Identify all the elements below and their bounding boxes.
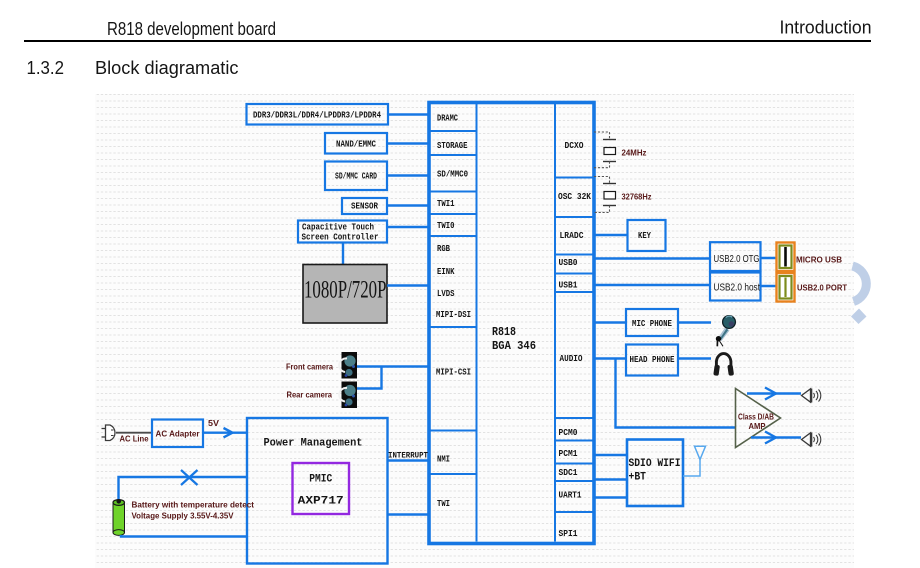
svg-text:24MHz: 24MHz — [622, 148, 647, 158]
svg-text:AMP: AMP — [749, 421, 766, 431]
svg-text:AUDIO: AUDIO — [560, 354, 584, 364]
svg-text:SD/MMC CARD: SD/MMC CARD — [335, 172, 377, 182]
svg-text:SDIO WIFI: SDIO WIFI — [629, 458, 681, 470]
svg-text:HEAD PHONE: HEAD PHONE — [630, 355, 675, 365]
svg-text:TWI: TWI — [437, 499, 450, 509]
svg-text:R818: R818 — [492, 326, 516, 339]
svg-text:KEY: KEY — [638, 231, 651, 241]
svg-text:Front camera: Front camera — [286, 362, 333, 372]
svg-text:DRAMC: DRAMC — [437, 114, 458, 124]
svg-text:SDC1: SDC1 — [559, 468, 579, 478]
svg-text:SENSOR: SENSOR — [351, 202, 378, 212]
svg-text:STORAGE: STORAGE — [437, 141, 468, 151]
svg-text:PCM1: PCM1 — [559, 449, 579, 459]
svg-text:1.3.2: 1.3.2 — [27, 57, 65, 78]
svg-text:USB2.0 PORT: USB2.0 PORT — [797, 283, 848, 293]
svg-text:MICRO USB: MICRO USB — [796, 255, 842, 265]
svg-text:Class D/AB: Class D/AB — [738, 412, 774, 422]
svg-text:PCM0: PCM0 — [559, 428, 578, 438]
svg-text:INTERRUPT: INTERRUPT — [388, 451, 428, 461]
svg-text:AC Adapter: AC Adapter — [156, 429, 201, 439]
svg-text:UART1: UART1 — [559, 491, 583, 501]
svg-text:Power Management: Power Management — [264, 438, 363, 450]
svg-text:RGB: RGB — [437, 244, 450, 254]
svg-text:USB0: USB0 — [559, 258, 578, 268]
svg-text:NMI: NMI — [437, 455, 450, 465]
svg-text:NAND/EMMC: NAND/EMMC — [336, 140, 376, 150]
svg-text:TWI0: TWI0 — [437, 221, 455, 231]
svg-text:TWI1: TWI1 — [437, 199, 455, 209]
svg-text:BGA 346: BGA 346 — [492, 340, 536, 353]
svg-text:OSC 32K: OSC 32K — [558, 192, 592, 202]
svg-text:USB1: USB1 — [559, 281, 579, 291]
svg-text:5V: 5V — [208, 418, 219, 428]
svg-text:Capacitive Touch: Capacitive Touch — [302, 223, 374, 233]
svg-text:Introduction: Introduction — [780, 17, 872, 38]
svg-text:Voltage Supply 3.55V-4.35V: Voltage Supply 3.55V-4.35V — [132, 511, 234, 521]
svg-text:AXP717: AXP717 — [298, 496, 344, 508]
svg-text:+BT: +BT — [629, 472, 647, 484]
svg-text:R818 development board: R818 development board — [107, 19, 276, 39]
svg-text:LRADC: LRADC — [560, 231, 585, 241]
svg-text:32768Hz: 32768Hz — [622, 192, 652, 202]
svg-text:LVDS: LVDS — [437, 289, 455, 299]
svg-text:USB2.0 host: USB2.0 host — [714, 283, 761, 294]
svg-text:USB2.0 OTG: USB2.0 OTG — [714, 254, 760, 265]
svg-text:Battery with temperature detec: Battery with temperature detect — [132, 500, 255, 510]
svg-text:MIPI-DSI: MIPI-DSI — [436, 310, 471, 320]
svg-text:SPI1: SPI1 — [559, 529, 579, 539]
svg-text:Screen Controller: Screen Controller — [302, 233, 379, 243]
svg-text:EINK: EINK — [437, 267, 455, 277]
svg-text:1080P/720P: 1080P/720P — [304, 275, 387, 304]
svg-text:MIC PHONE: MIC PHONE — [632, 319, 672, 329]
svg-text:DDR3/DDR3L/DDR4/LPDDR3/LPDDR4: DDR3/DDR3L/DDR4/LPDDR3/LPDDR4 — [253, 111, 381, 121]
svg-text:SD/MMC0: SD/MMC0 — [437, 170, 468, 180]
svg-text:Block diagramatic: Block diagramatic — [95, 57, 239, 78]
svg-text:Rear camera: Rear camera — [287, 390, 333, 400]
svg-text:AC Line: AC Line — [120, 434, 149, 444]
svg-text:DCXO: DCXO — [565, 141, 585, 151]
svg-text:PMIC: PMIC — [309, 474, 332, 486]
svg-text:MIPI-CSI: MIPI-CSI — [436, 368, 471, 378]
